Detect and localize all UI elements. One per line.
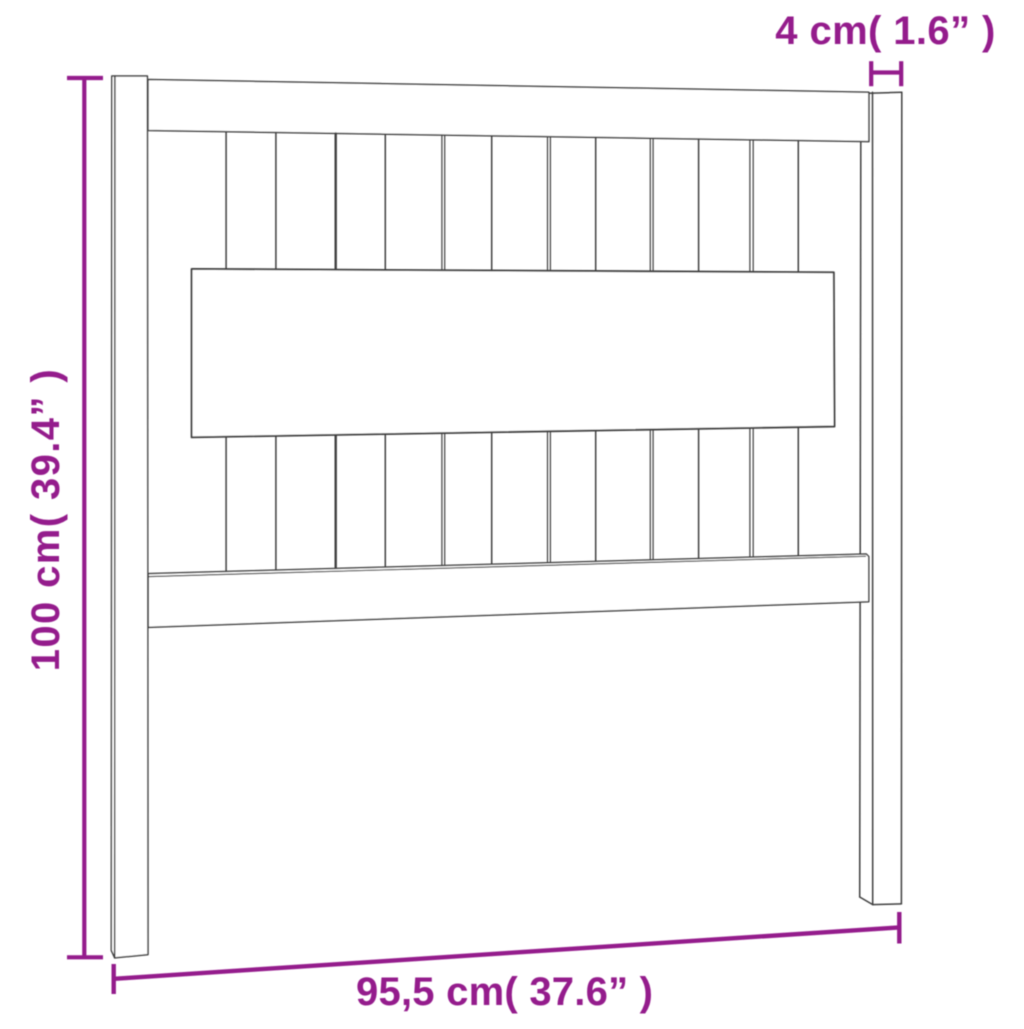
svg-text:4 cm( 1.6” ): 4 cm( 1.6” ) — [775, 9, 995, 53]
svg-text:100 cm( 39.4” ): 100 cm( 39.4” ) — [24, 369, 68, 671]
svg-text:95,5 cm( 37.6” ): 95,5 cm( 37.6” ) — [356, 970, 653, 1014]
